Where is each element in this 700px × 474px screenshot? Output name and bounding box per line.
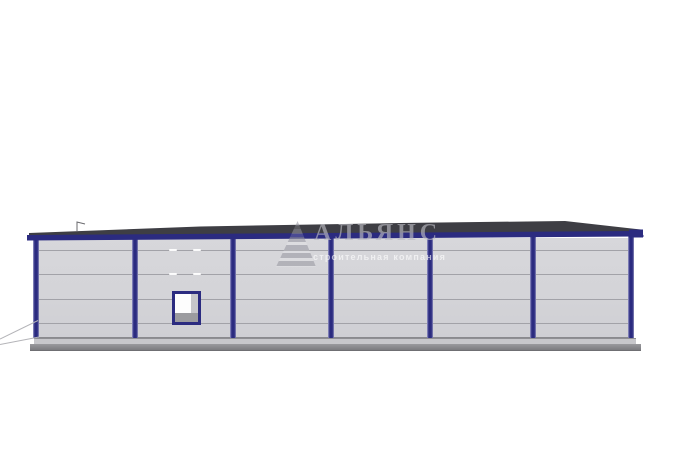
roof-and-ground-linework — [0, 0, 700, 474]
roof-vent-pipe — [77, 222, 85, 231]
eaves-corner-cap — [629, 230, 643, 238]
ground-line — [0, 337, 39, 345]
window-sill — [175, 313, 198, 322]
building-elevation-render: АЛЬЯНС строительная компания — [0, 0, 700, 474]
ground-line — [0, 321, 38, 340]
wall-window — [172, 291, 201, 325]
